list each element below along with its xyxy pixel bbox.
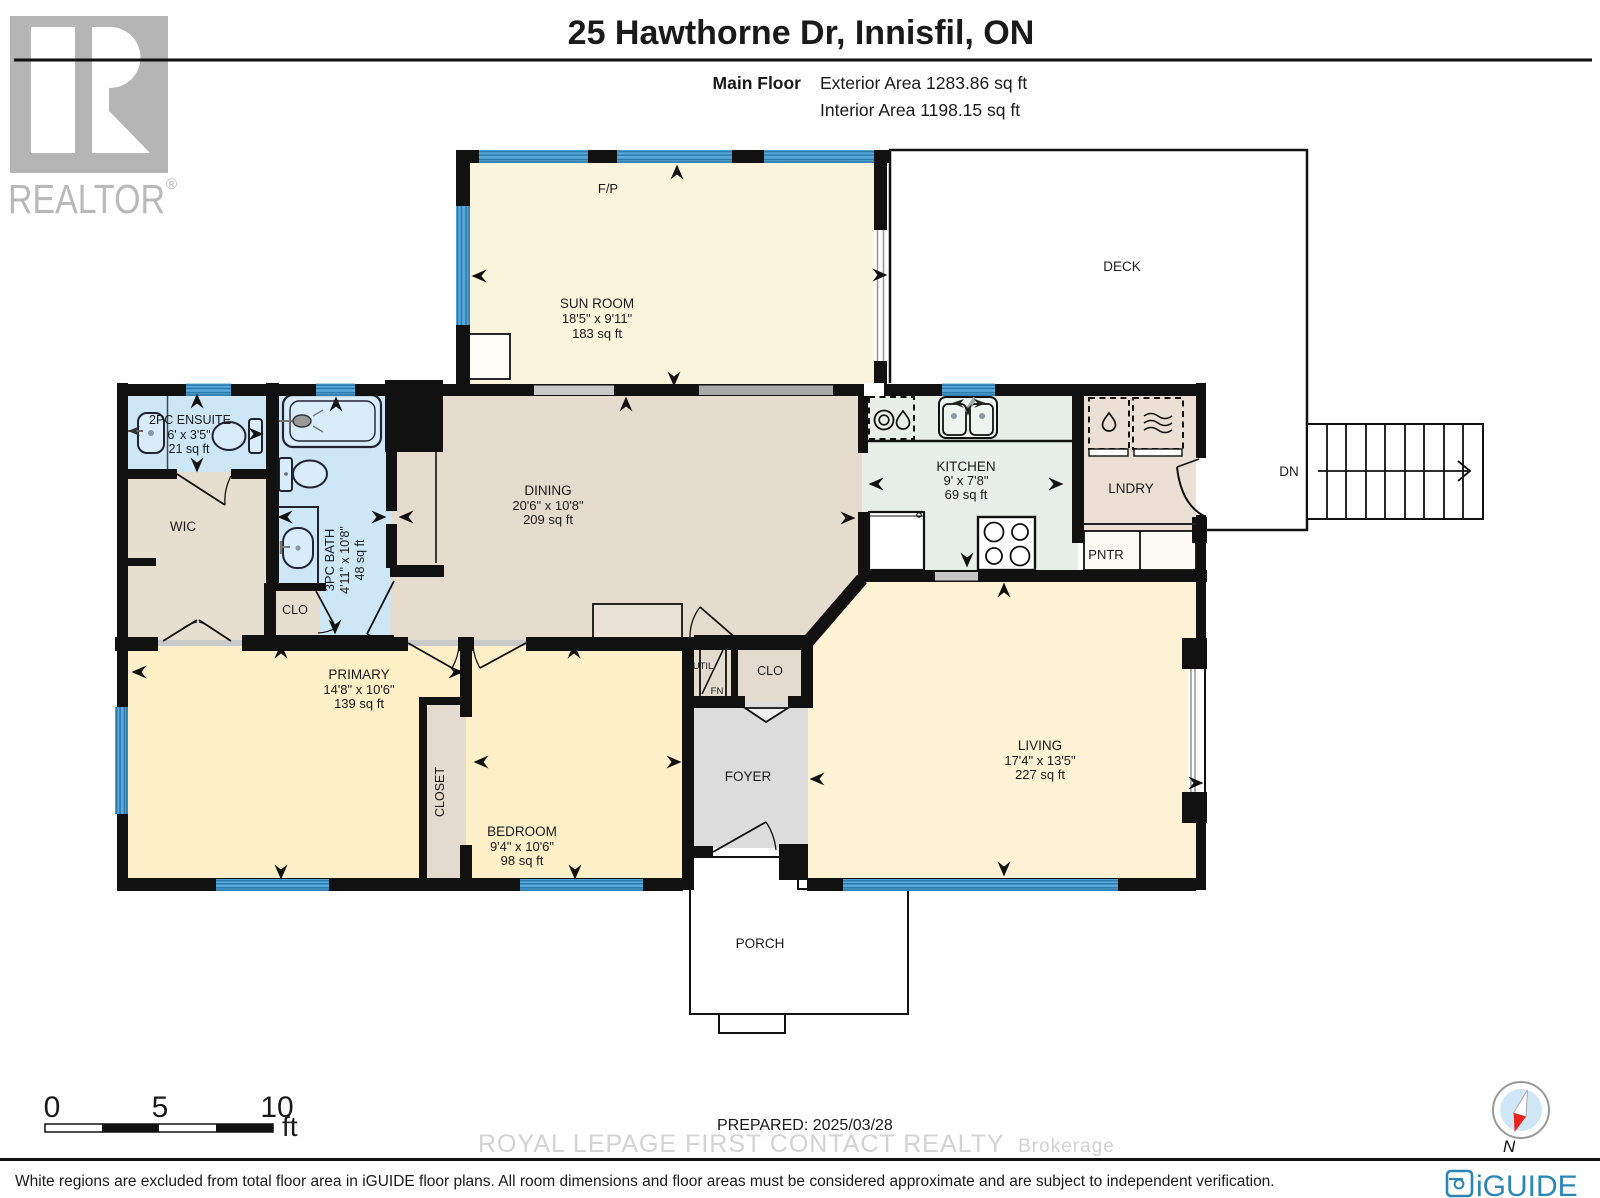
svg-text:PRIMARY: PRIMARY bbox=[328, 667, 389, 682]
svg-text:2PC ENSUITE: 2PC ENSUITE bbox=[149, 413, 231, 427]
svg-text:N: N bbox=[1503, 1137, 1516, 1156]
svg-text:DN: DN bbox=[1279, 464, 1299, 479]
svg-text:18'5" x 9'11": 18'5" x 9'11" bbox=[562, 311, 633, 326]
svg-text:PORCH: PORCH bbox=[736, 936, 785, 951]
svg-text:48 sq ft: 48 sq ft bbox=[353, 539, 367, 581]
svg-text:BEDROOM: BEDROOM bbox=[487, 824, 557, 839]
svg-text:14'8" x 10'6": 14'8" x 10'6" bbox=[323, 682, 395, 697]
svg-text:25 Hawthorne Dr, Innisfil, ON: 25 Hawthorne Dr, Innisfil, ON bbox=[568, 14, 1035, 52]
svg-text:UTIL: UTIL bbox=[693, 661, 714, 672]
svg-text:DINING: DINING bbox=[524, 483, 571, 498]
svg-text:DECK: DECK bbox=[1103, 259, 1141, 274]
svg-text:139 sq ft: 139 sq ft bbox=[334, 696, 384, 711]
svg-text:ft: ft bbox=[282, 1111, 298, 1142]
svg-text:17'4" x 13'5": 17'4" x 13'5" bbox=[1004, 753, 1076, 768]
svg-text:iGUIDE: iGUIDE bbox=[1476, 1170, 1578, 1198]
svg-text:FN: FN bbox=[711, 686, 724, 697]
svg-text:SUN ROOM: SUN ROOM bbox=[560, 296, 634, 311]
svg-text:183 sq ft: 183 sq ft bbox=[572, 326, 622, 341]
svg-text:5: 5 bbox=[152, 1091, 169, 1124]
svg-text:F/P: F/P bbox=[598, 181, 618, 196]
svg-text:9'4" x 10'6": 9'4" x 10'6" bbox=[490, 839, 554, 854]
svg-text:227 sq ft: 227 sq ft bbox=[1015, 767, 1065, 782]
svg-text:LNDRY: LNDRY bbox=[1108, 481, 1154, 496]
svg-text:®: ® bbox=[166, 176, 177, 193]
svg-text:209 sq ft: 209 sq ft bbox=[523, 512, 573, 527]
svg-text:3PC BATH: 3PC BATH bbox=[322, 529, 337, 592]
svg-text:LIVING: LIVING bbox=[1018, 738, 1062, 753]
svg-text:Exterior Area 1283.86 sq ft: Exterior Area 1283.86 sq ft bbox=[820, 73, 1027, 93]
svg-text:PNTR: PNTR bbox=[1088, 547, 1123, 562]
svg-text:98 sq ft: 98 sq ft bbox=[501, 853, 544, 868]
svg-text:Main Floor: Main Floor bbox=[713, 73, 802, 93]
svg-text:0: 0 bbox=[44, 1091, 61, 1124]
svg-text:20'6" x 10'8": 20'6" x 10'8" bbox=[512, 498, 584, 513]
svg-text:CLO: CLO bbox=[282, 603, 308, 617]
svg-text:69 sq ft: 69 sq ft bbox=[945, 487, 988, 502]
svg-text:CLOSET: CLOSET bbox=[433, 767, 447, 817]
svg-text:9' x 7'8": 9' x 7'8" bbox=[944, 473, 989, 488]
svg-text:Interior Area 1198.15 sq ft: Interior Area 1198.15 sq ft bbox=[820, 100, 1020, 120]
svg-text:CLO: CLO bbox=[757, 664, 783, 678]
svg-text:White regions are excluded fro: White regions are excluded from total fl… bbox=[15, 1173, 1275, 1190]
svg-text:21 sq ft: 21 sq ft bbox=[169, 442, 211, 456]
svg-text:KITCHEN: KITCHEN bbox=[936, 459, 995, 474]
svg-text:WIC: WIC bbox=[170, 519, 196, 534]
svg-text:4'11" x 10'8": 4'11" x 10'8" bbox=[338, 526, 352, 594]
svg-text:REALTOR: REALTOR bbox=[8, 176, 165, 222]
svg-text:FOYER: FOYER bbox=[725, 769, 772, 784]
svg-text:6' x 3'5": 6' x 3'5" bbox=[167, 428, 210, 442]
